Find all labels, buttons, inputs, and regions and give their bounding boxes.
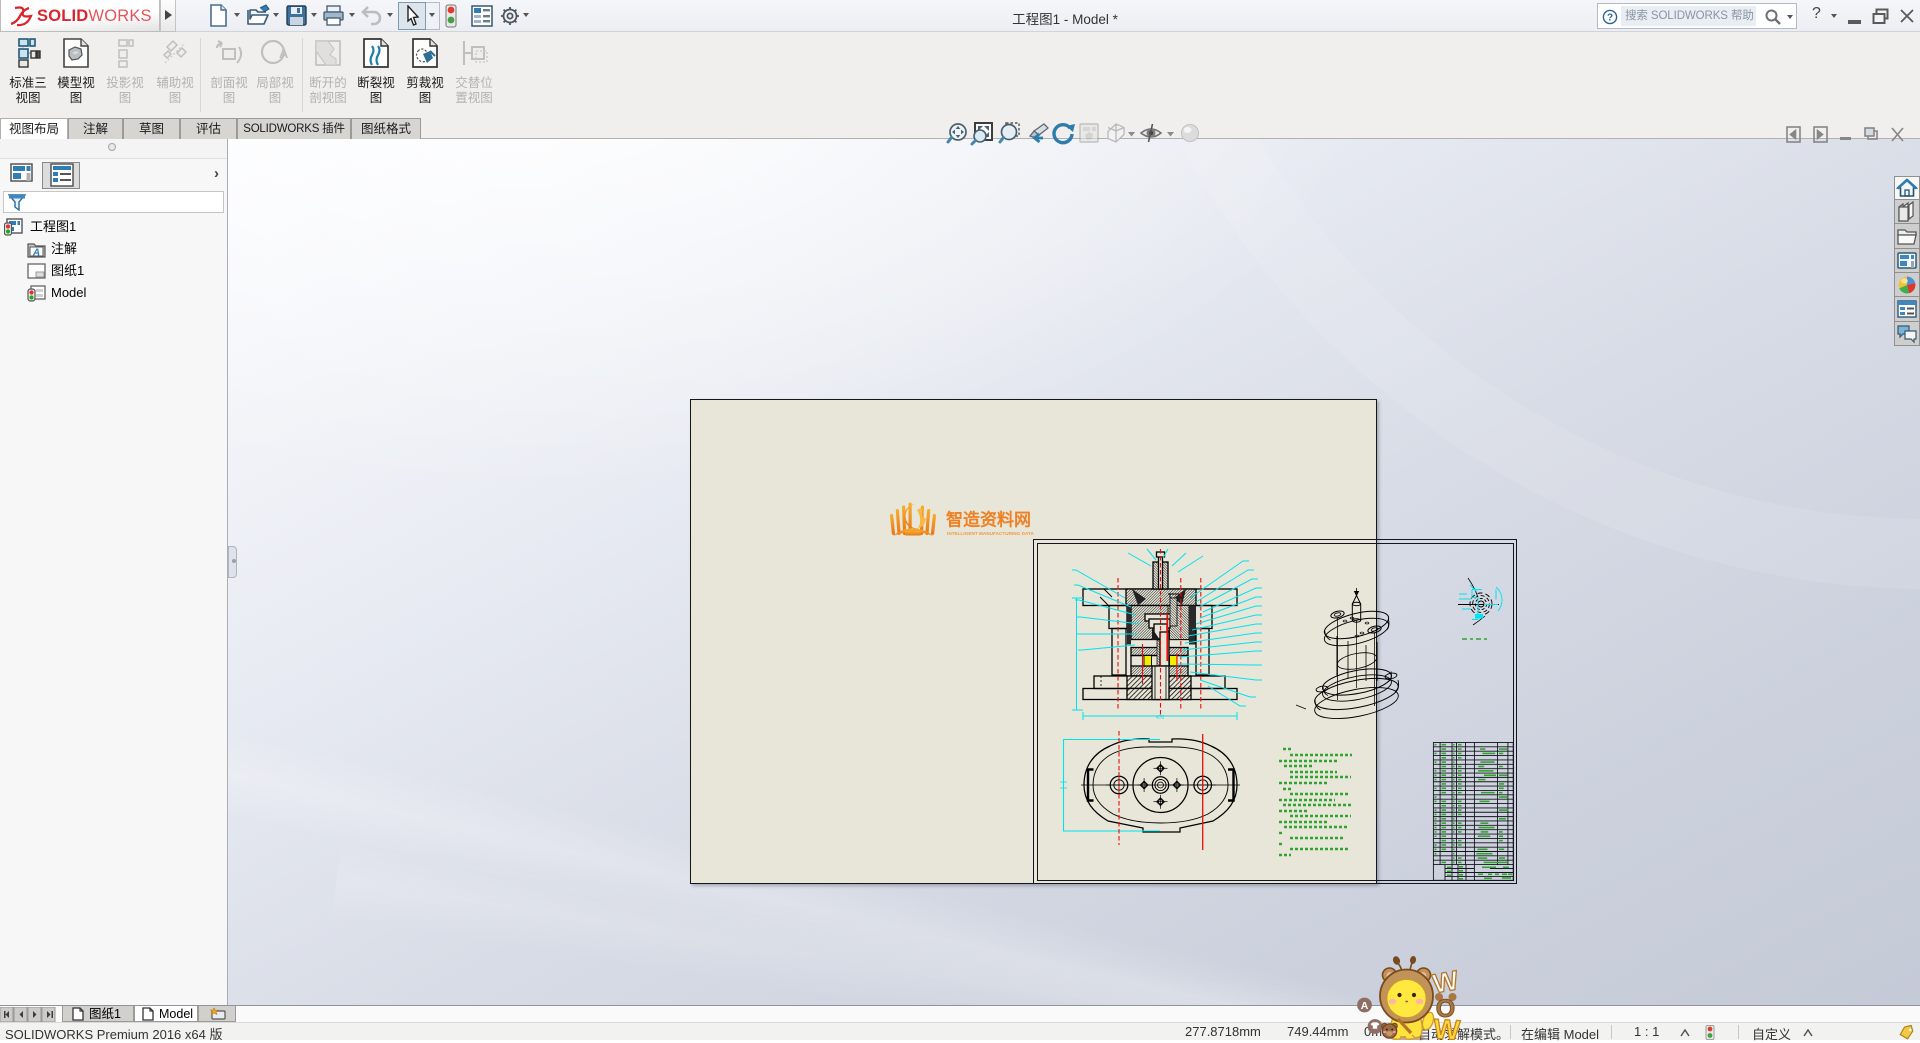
svg-text:INTELLIGENT MANUFACTURING DATA: INTELLIGENT MANUFACTURING DATA	[947, 531, 1035, 536]
svg-text:A: A	[32, 248, 40, 259]
svg-text:470: 470	[1156, 715, 1165, 721]
svg-text:智造资料网: 智造资料网	[946, 510, 1031, 530]
svg-text:A: A	[1361, 1000, 1369, 1012]
svg-text:W: W	[1432, 1013, 1461, 1040]
svg-text:A: A	[279, 46, 289, 61]
svg-text:?: ?	[1607, 12, 1613, 23]
svg-text:W: W	[1430, 965, 1461, 999]
